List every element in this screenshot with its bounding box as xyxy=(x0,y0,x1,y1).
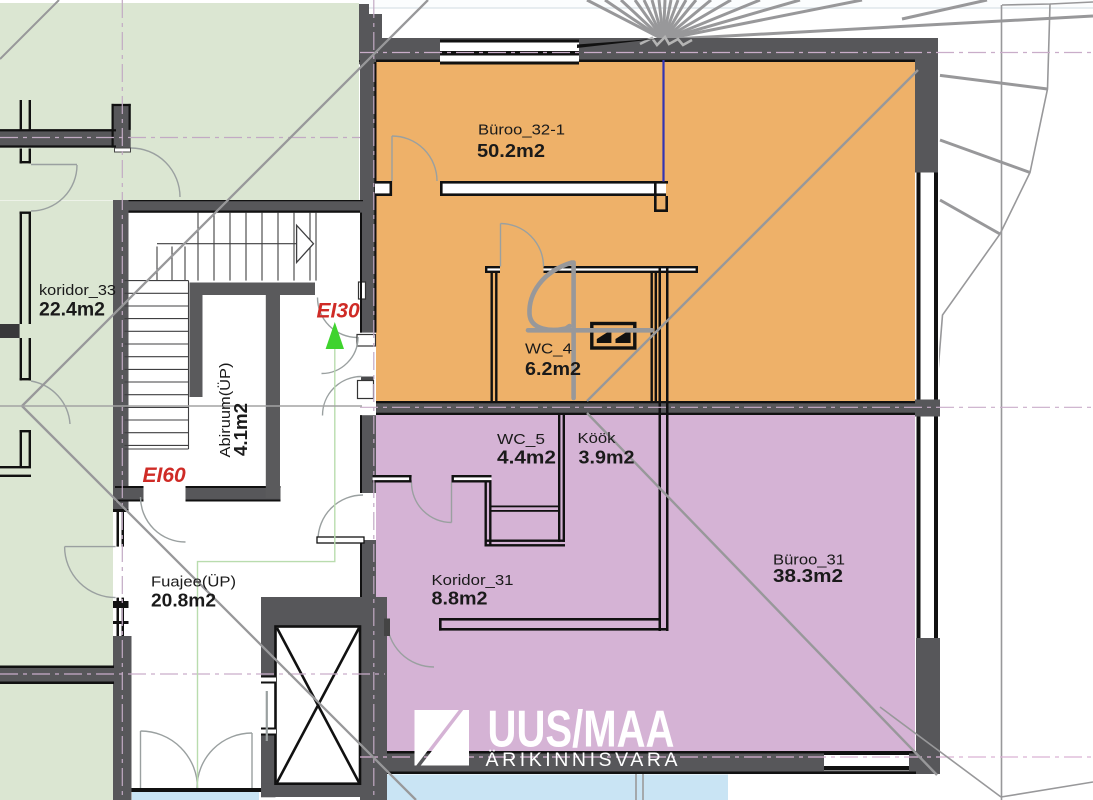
svg-text:koridor_33: koridor_33 xyxy=(39,283,116,299)
svg-text:20.8m2: 20.8m2 xyxy=(151,590,216,611)
svg-text:Köök: Köök xyxy=(578,431,617,447)
svg-text:4.1m2: 4.1m2 xyxy=(230,403,251,456)
svg-text:WC_4: WC_4 xyxy=(525,342,572,358)
svg-text:EI60: EI60 xyxy=(143,464,187,487)
svg-text:EI30: EI30 xyxy=(317,300,361,323)
svg-text:50.2m2: 50.2m2 xyxy=(477,140,545,161)
svg-text:22.4m2: 22.4m2 xyxy=(39,299,105,321)
svg-text:6.2m2: 6.2m2 xyxy=(525,358,581,379)
svg-text:8.8m2: 8.8m2 xyxy=(432,588,488,609)
svg-text:ÄRIKINNISVARA: ÄRIKINNISVARA xyxy=(486,749,678,771)
svg-text:3.9m2: 3.9m2 xyxy=(579,447,635,468)
svg-text:4.4m2: 4.4m2 xyxy=(497,447,556,468)
svg-text:Büroo_32-1: Büroo_32-1 xyxy=(478,123,565,139)
svg-text:38.3m2: 38.3m2 xyxy=(773,566,843,586)
svg-text:Fuajee(ÜP): Fuajee(ÜP) xyxy=(151,573,236,591)
